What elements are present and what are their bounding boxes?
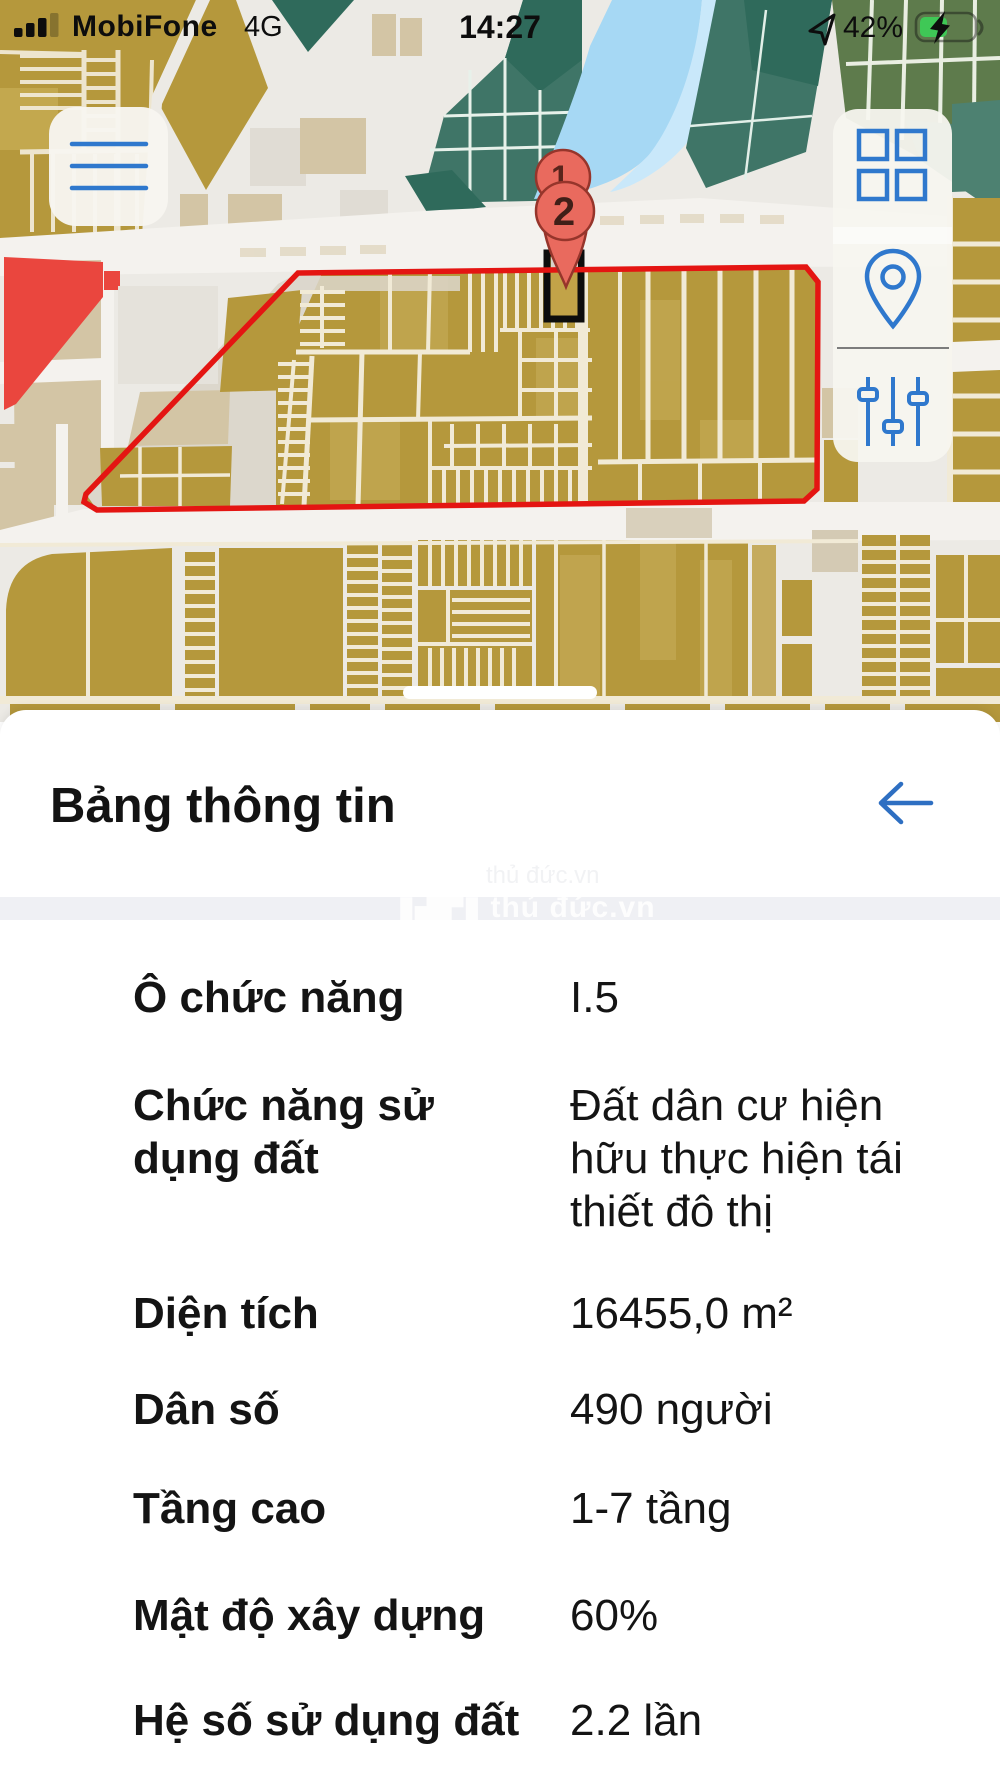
svg-text:2: 2 <box>553 190 575 234</box>
